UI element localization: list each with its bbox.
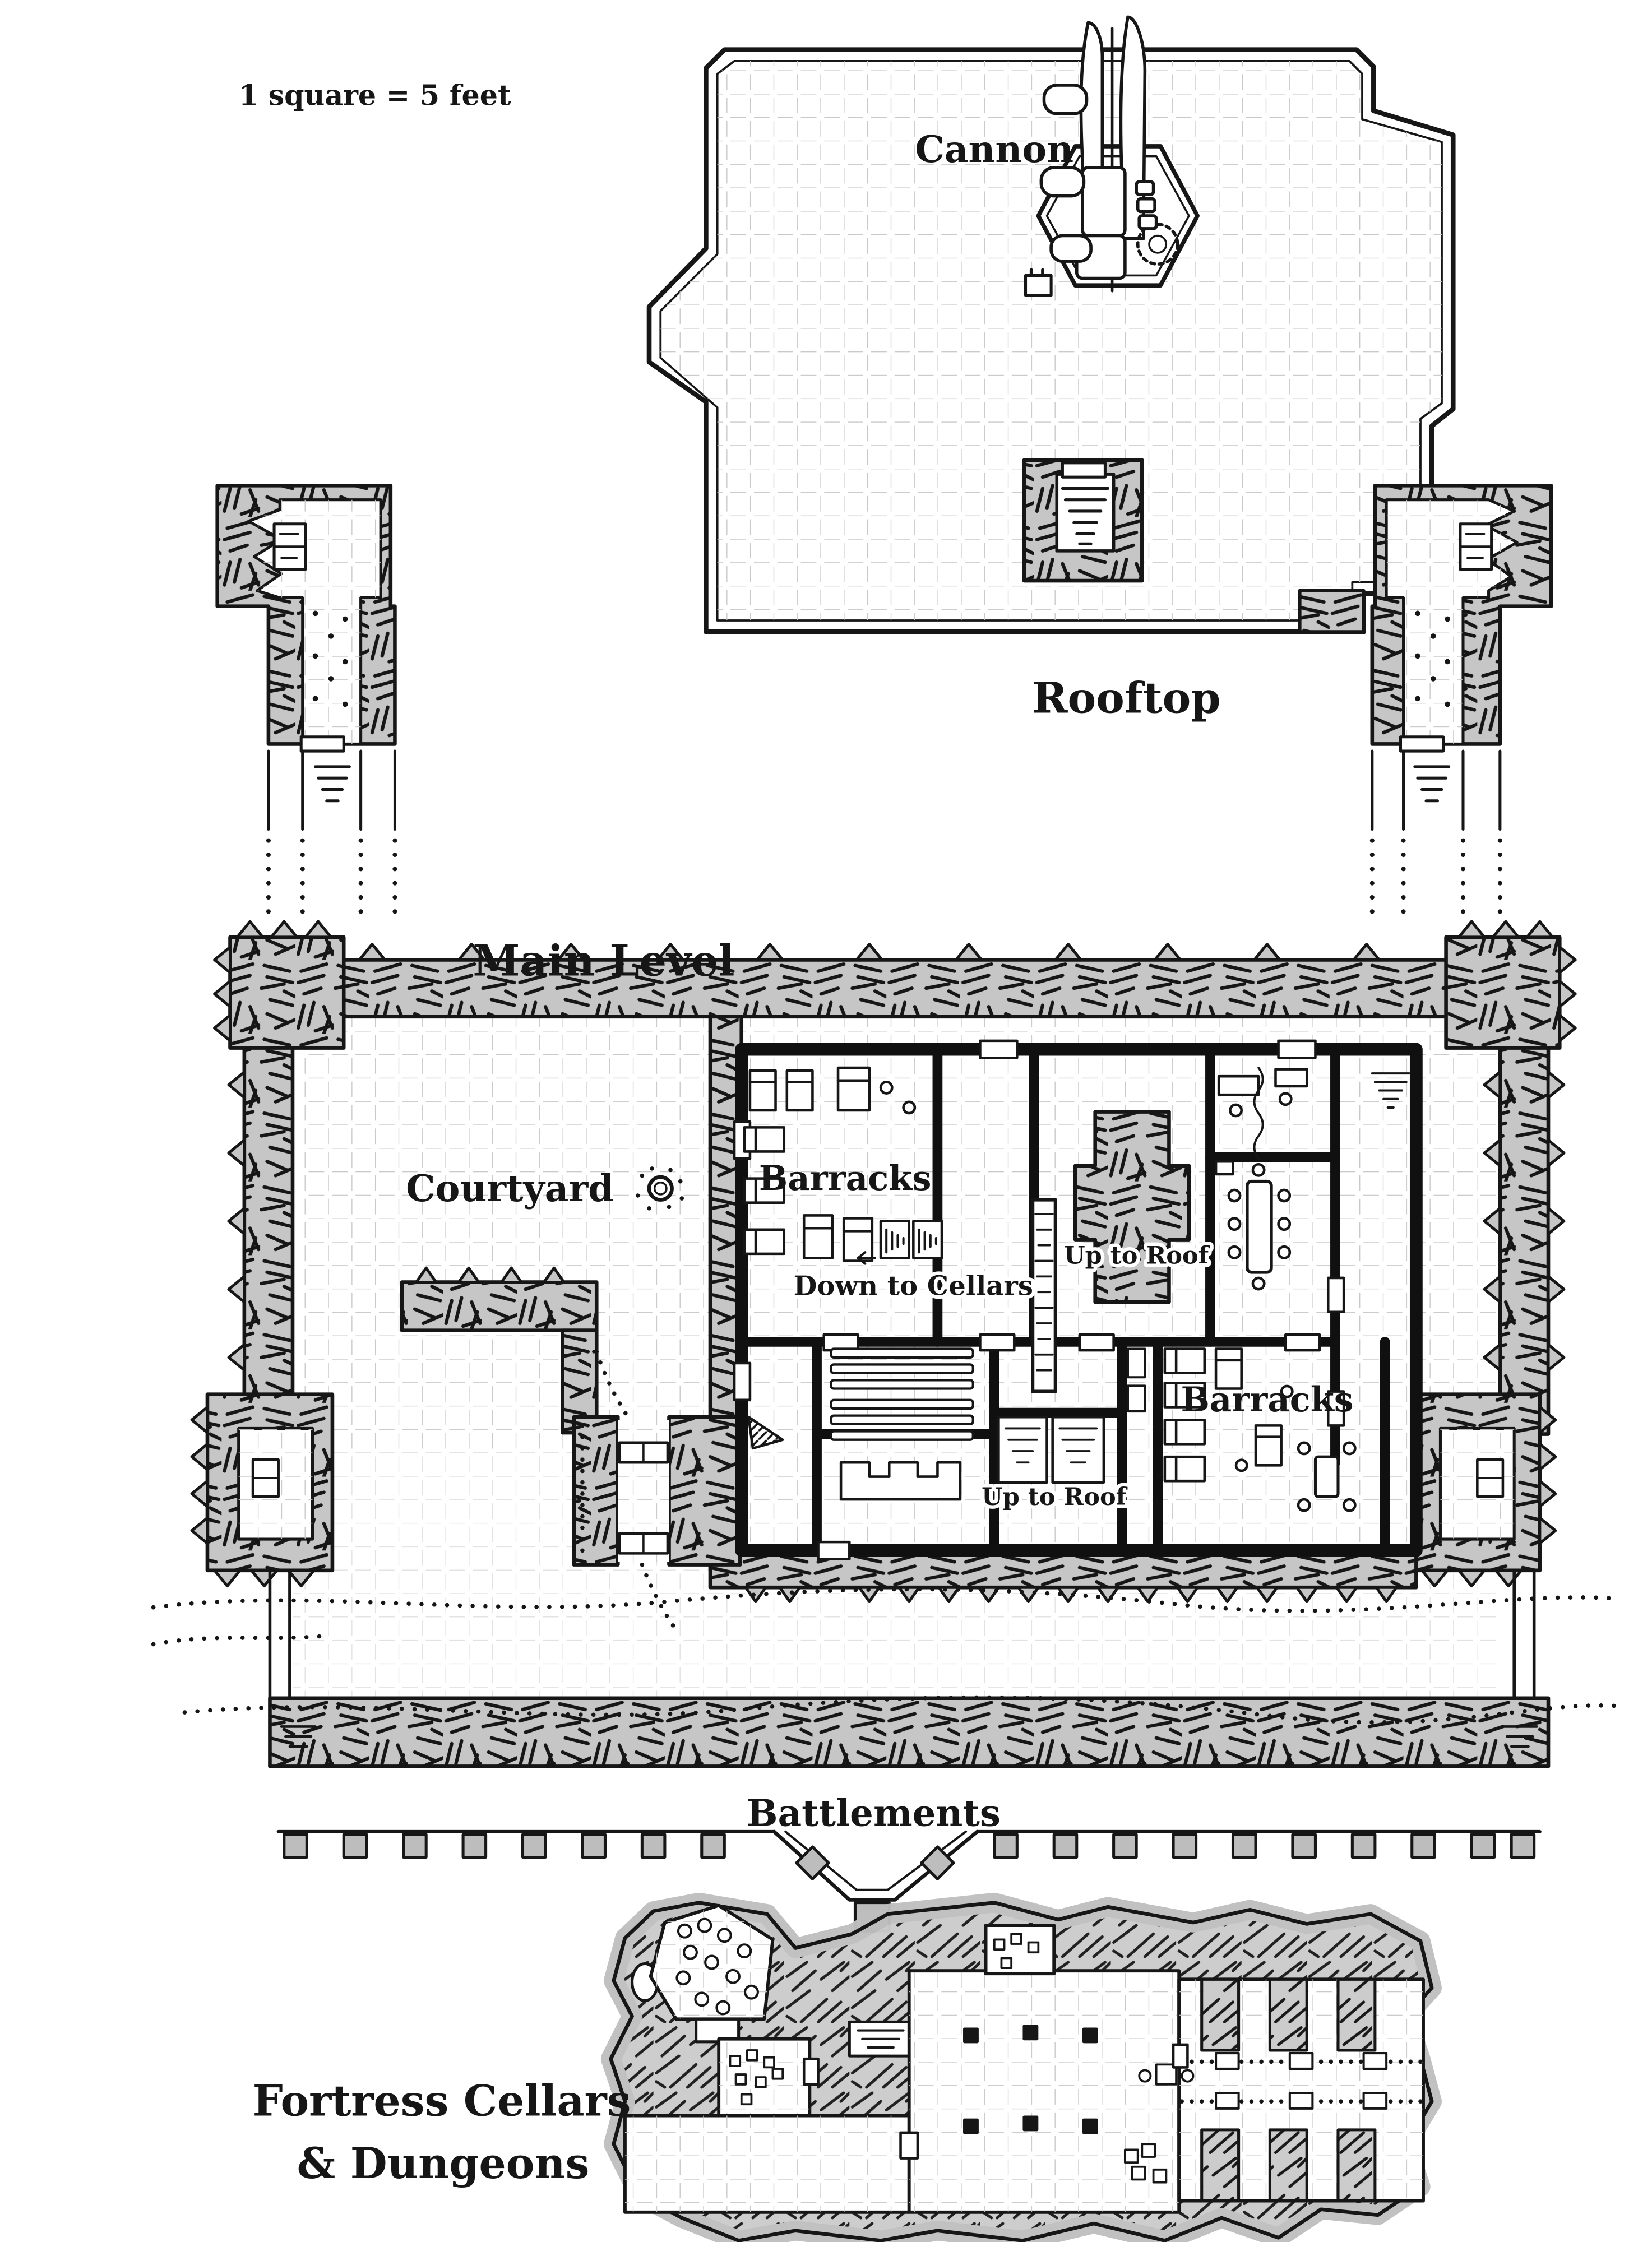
stair-strip [1033, 1200, 1056, 1392]
rooftop-label: Rooftop [1032, 673, 1220, 723]
cellars-level [611, 1903, 1432, 2241]
main-level-label: Main Level [473, 935, 734, 985]
upper-left-tower [218, 485, 395, 925]
up-to-roof-north-label: Up to Roof [1064, 1242, 1210, 1270]
cellars-label-line2: & Dungeons [297, 2138, 590, 2188]
corner-tower-nw [230, 937, 344, 1048]
up-to-roof-south-label: Up to Roof [982, 1483, 1128, 1511]
roof-stair-housing [1024, 460, 1142, 581]
battlements-label: Battlements [747, 1791, 1001, 1835]
rooftop-wall-connector [1300, 591, 1364, 632]
east-tower-room [1440, 1428, 1514, 1539]
down-to-cellars-label: Down to Cellars [794, 1270, 1033, 1301]
gate-pier-west [574, 1417, 618, 1564]
west-tower-room [239, 1428, 313, 1539]
barracks-north-label: Barracks [759, 1159, 932, 1198]
tower-fade-dots [1372, 841, 1500, 926]
courtyard-label: Courtyard [406, 1166, 614, 1210]
rooftop-level [649, 17, 1453, 632]
south-wall [270, 1698, 1548, 1767]
kitchen-counter [841, 1462, 960, 1499]
cellars-label-line1: Fortress Cellars [253, 2076, 631, 2126]
tower-fade-dots [269, 841, 395, 926]
barracks-south-label: Barracks [1181, 1380, 1353, 1420]
tower-desk [274, 524, 306, 569]
tower-door [301, 737, 344, 751]
tower-door [1400, 737, 1443, 751]
gate-pier-east [669, 1417, 740, 1564]
courtyard-wall-h [402, 1282, 596, 1331]
tower-desk [1460, 524, 1492, 569]
corner-tower-ne [1446, 937, 1560, 1048]
cannon-label: Cannon [915, 127, 1073, 171]
fortress-map: 1 square = 5 feet Cannon Rooftop Main Le… [0, 0, 1652, 2242]
upper-right-tower [1372, 485, 1551, 925]
scale-note: 1 square = 5 feet [239, 78, 511, 112]
fortress-map-page: 1 square = 5 feet Cannon Rooftop Main Le… [0, 0, 1652, 2242]
main-level [154, 921, 1627, 1931]
